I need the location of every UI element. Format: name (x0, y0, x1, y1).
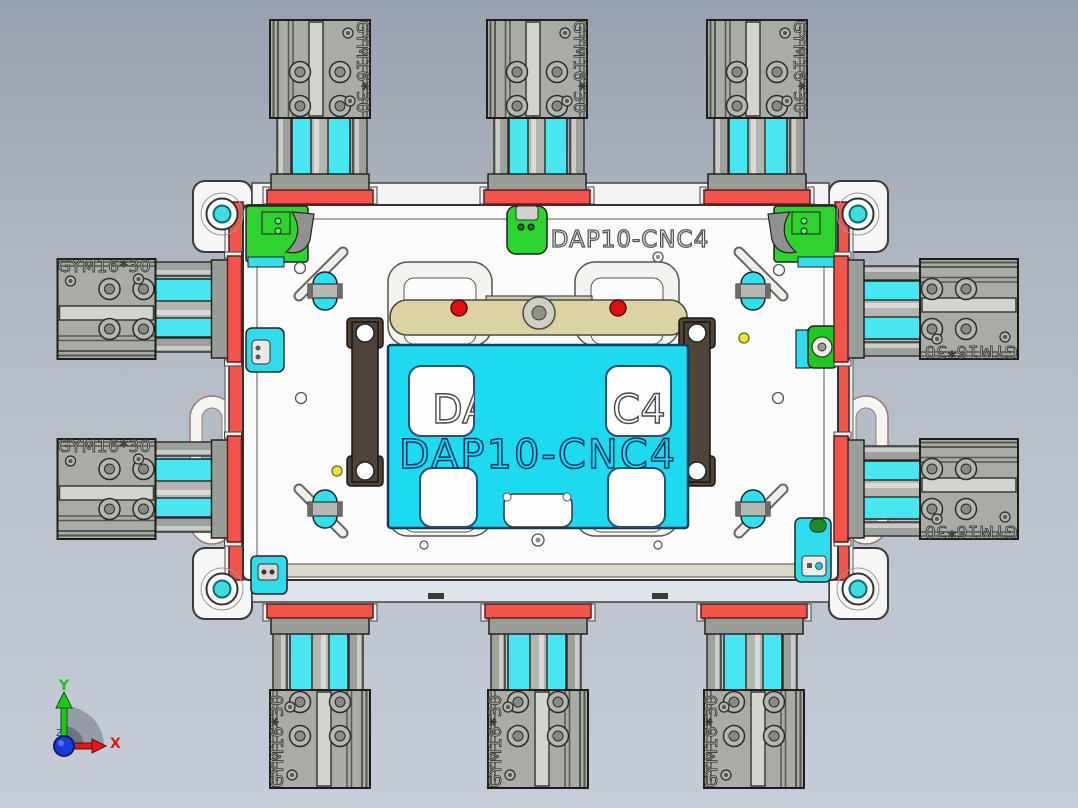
top-engraving: DAP10-CNC4 (551, 227, 709, 253)
corner-clamp-green-right[interactable] (768, 206, 836, 267)
red-button-right[interactable] (610, 300, 626, 316)
cylinder-bottom-left[interactable] (263, 604, 377, 788)
top-middle-clamp[interactable] (507, 206, 547, 254)
mid-clamp-right[interactable] (796, 326, 838, 368)
bolt-hole (356, 324, 374, 342)
bolt-hole (688, 462, 706, 480)
cylinder-top-center[interactable]: GYM16*30 (480, 20, 594, 204)
cylinder-model-label: GYM16*30 (569, 20, 589, 113)
cylinder-bottom-right[interactable] (697, 604, 811, 788)
cylinder-top-left[interactable] (263, 20, 377, 204)
center-notch (504, 494, 572, 527)
mount-block (488, 174, 586, 191)
pocket-right-text: C4 (612, 387, 665, 433)
axis-triad[interactable]: Z Y X (54, 678, 121, 756)
clamp-bar[interactable] (390, 296, 687, 335)
axis-origin-sphere (54, 736, 74, 756)
bolt-hole (356, 462, 374, 480)
cylinder-top-right[interactable] (700, 20, 814, 204)
cylinder-left-upper[interactable] (58, 252, 242, 366)
axis-y-label: Y (58, 678, 70, 694)
seal-block (484, 190, 590, 204)
cylinder-bottom-center[interactable] (481, 604, 595, 788)
mid-clamp-left[interactable] (246, 328, 284, 372)
rim-notch-bottom-right (652, 593, 668, 599)
axis-x-label: X (110, 736, 121, 752)
lower-rail-band (268, 564, 824, 577)
red-button-left[interactable] (451, 300, 467, 316)
yellow-pin-left (332, 466, 342, 476)
bolt-hole (688, 324, 706, 342)
clamp-block-left[interactable] (347, 318, 383, 486)
cylinder-right-upper[interactable] (834, 252, 1018, 366)
workpiece-plate[interactable]: DA C4 DAP10-CNC4 (388, 345, 688, 528)
rim-notch-bottom-left (428, 593, 444, 599)
plate-rim-bottom (252, 578, 829, 602)
cad-viewport[interactable]: DA C4 DAP10-CNC4 (0, 0, 1078, 808)
center-engraving: DAP10-CNC4 (399, 432, 677, 478)
bottom-clamp-left[interactable] (251, 556, 287, 594)
fixture-plate[interactable]: DA C4 DAP10-CNC4 (190, 181, 888, 619)
yellow-pin-right (739, 333, 749, 343)
cylinder-right-lower[interactable] (834, 432, 1018, 546)
corner-clamp-green-left[interactable] (246, 206, 314, 267)
cylinder-left-lower[interactable] (58, 432, 242, 546)
bottom-clamp-right[interactable] (795, 518, 831, 582)
